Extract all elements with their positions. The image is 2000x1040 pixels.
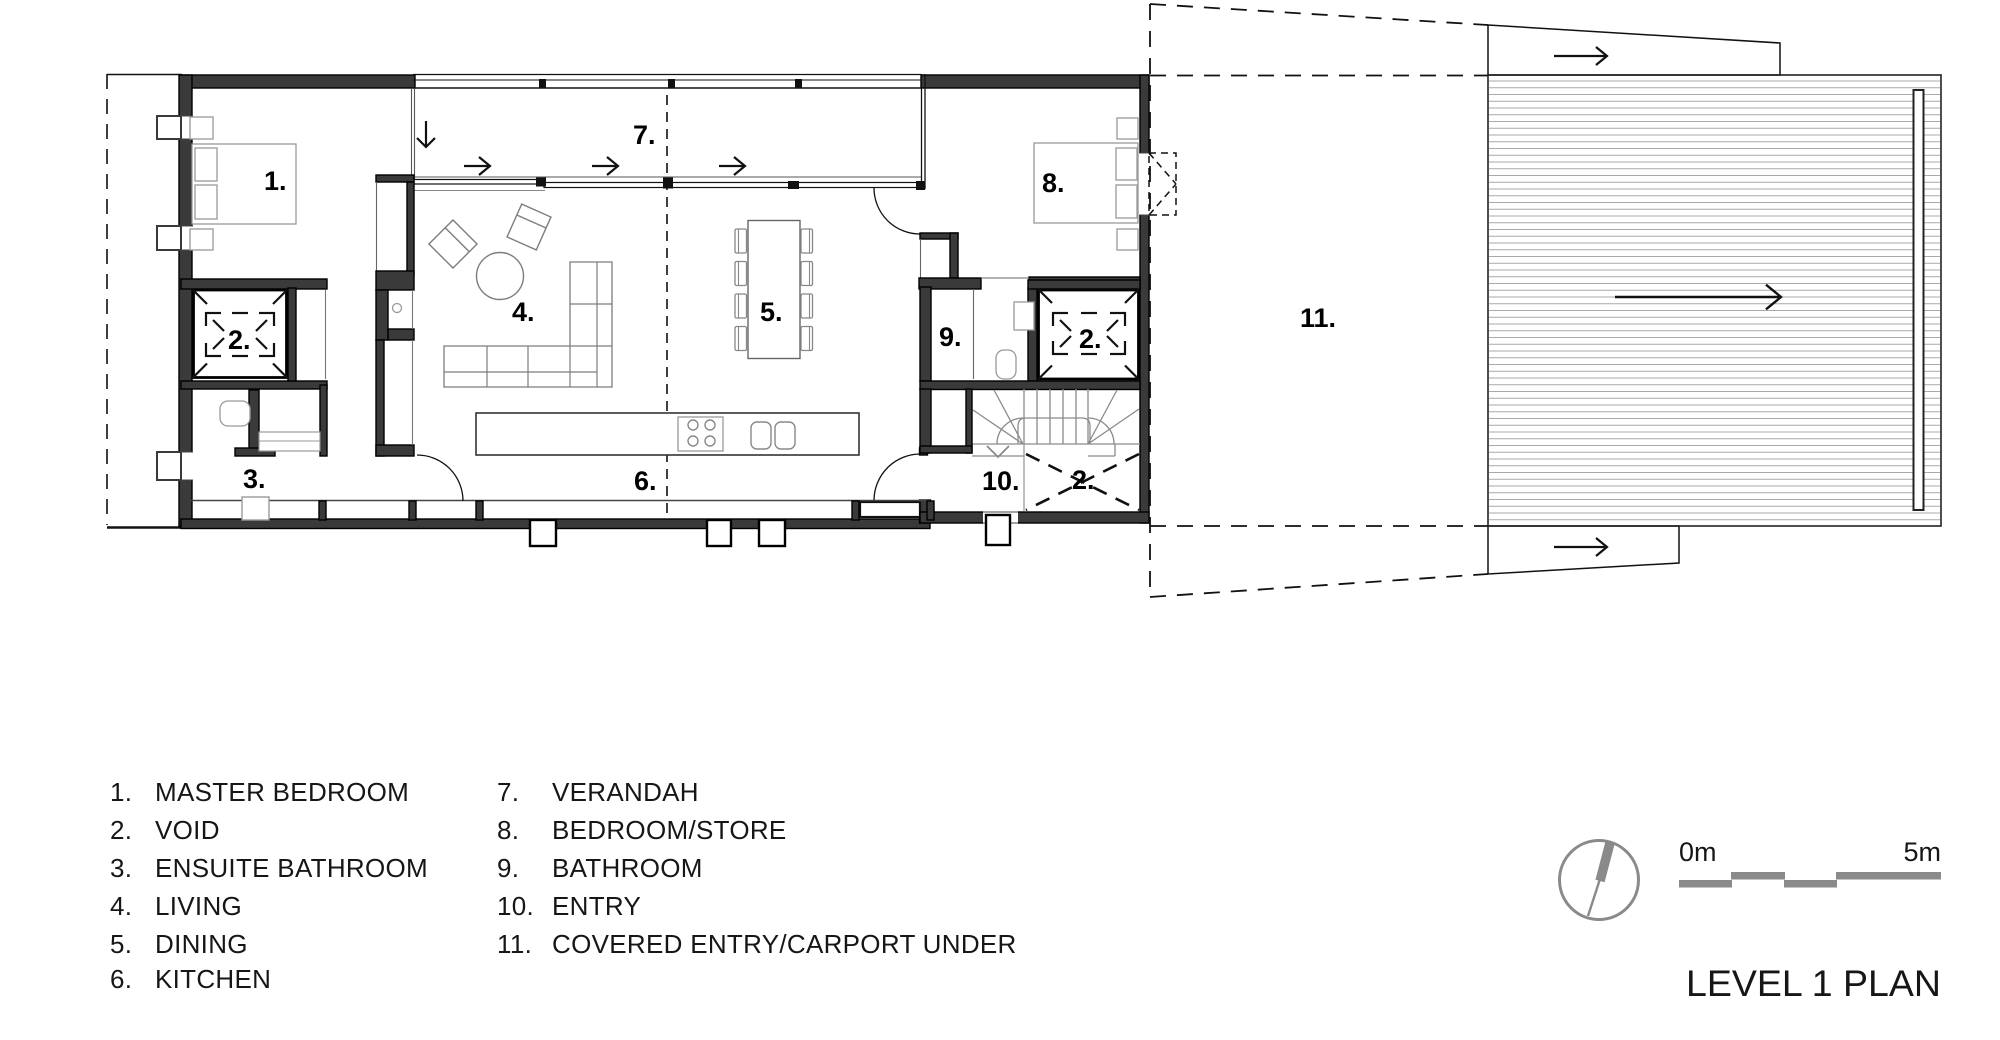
svg-text:10.: 10.: [497, 891, 534, 921]
svg-text:6.: 6.: [110, 964, 132, 994]
svg-text:MASTER BEDROOM: MASTER BEDROOM: [155, 777, 409, 807]
svg-text:11.: 11.: [497, 929, 532, 959]
svg-text:7.: 7.: [497, 777, 519, 807]
svg-text:4.: 4.: [512, 297, 535, 327]
svg-text:3.: 3.: [110, 853, 132, 883]
svg-text:LEVEL 1 PLAN: LEVEL 1 PLAN: [1686, 962, 1941, 1004]
svg-text:2.: 2.: [1079, 324, 1102, 354]
svg-text:2.: 2.: [1072, 465, 1095, 495]
svg-text:4.: 4.: [110, 891, 132, 921]
svg-text:ENSUITE BATHROOM: ENSUITE BATHROOM: [155, 853, 428, 883]
svg-text:VERANDAH: VERANDAH: [552, 777, 699, 807]
svg-text:BEDROOM/STORE: BEDROOM/STORE: [552, 815, 787, 845]
svg-text:3.: 3.: [243, 464, 266, 494]
svg-text:2.: 2.: [110, 815, 132, 845]
svg-text:9.: 9.: [939, 322, 962, 352]
svg-text:2.: 2.: [228, 325, 251, 355]
svg-text:COVERED ENTRY/CARPORT UNDER: COVERED ENTRY/CARPORT UNDER: [552, 929, 1017, 959]
svg-text:LIVING: LIVING: [155, 891, 242, 921]
svg-text:1.: 1.: [110, 777, 132, 807]
svg-text:5m: 5m: [1903, 837, 1941, 867]
svg-text:ENTRY: ENTRY: [552, 891, 641, 921]
svg-text:9.: 9.: [497, 853, 519, 883]
svg-text:BATHROOM: BATHROOM: [552, 853, 703, 883]
svg-text:8.: 8.: [497, 815, 519, 845]
svg-text:5.: 5.: [110, 929, 132, 959]
svg-text:8.: 8.: [1042, 168, 1065, 198]
svg-text:0m: 0m: [1679, 837, 1717, 867]
svg-text:1.: 1.: [264, 166, 287, 196]
svg-text:DINING: DINING: [155, 929, 248, 959]
svg-text:10.: 10.: [982, 466, 1020, 496]
svg-text:11.: 11.: [1300, 303, 1336, 333]
svg-text:6.: 6.: [634, 466, 657, 496]
svg-text:KITCHEN: KITCHEN: [155, 964, 271, 994]
svg-text:5.: 5.: [760, 297, 783, 327]
svg-text:VOID: VOID: [155, 815, 220, 845]
svg-text:7.: 7.: [633, 120, 656, 150]
